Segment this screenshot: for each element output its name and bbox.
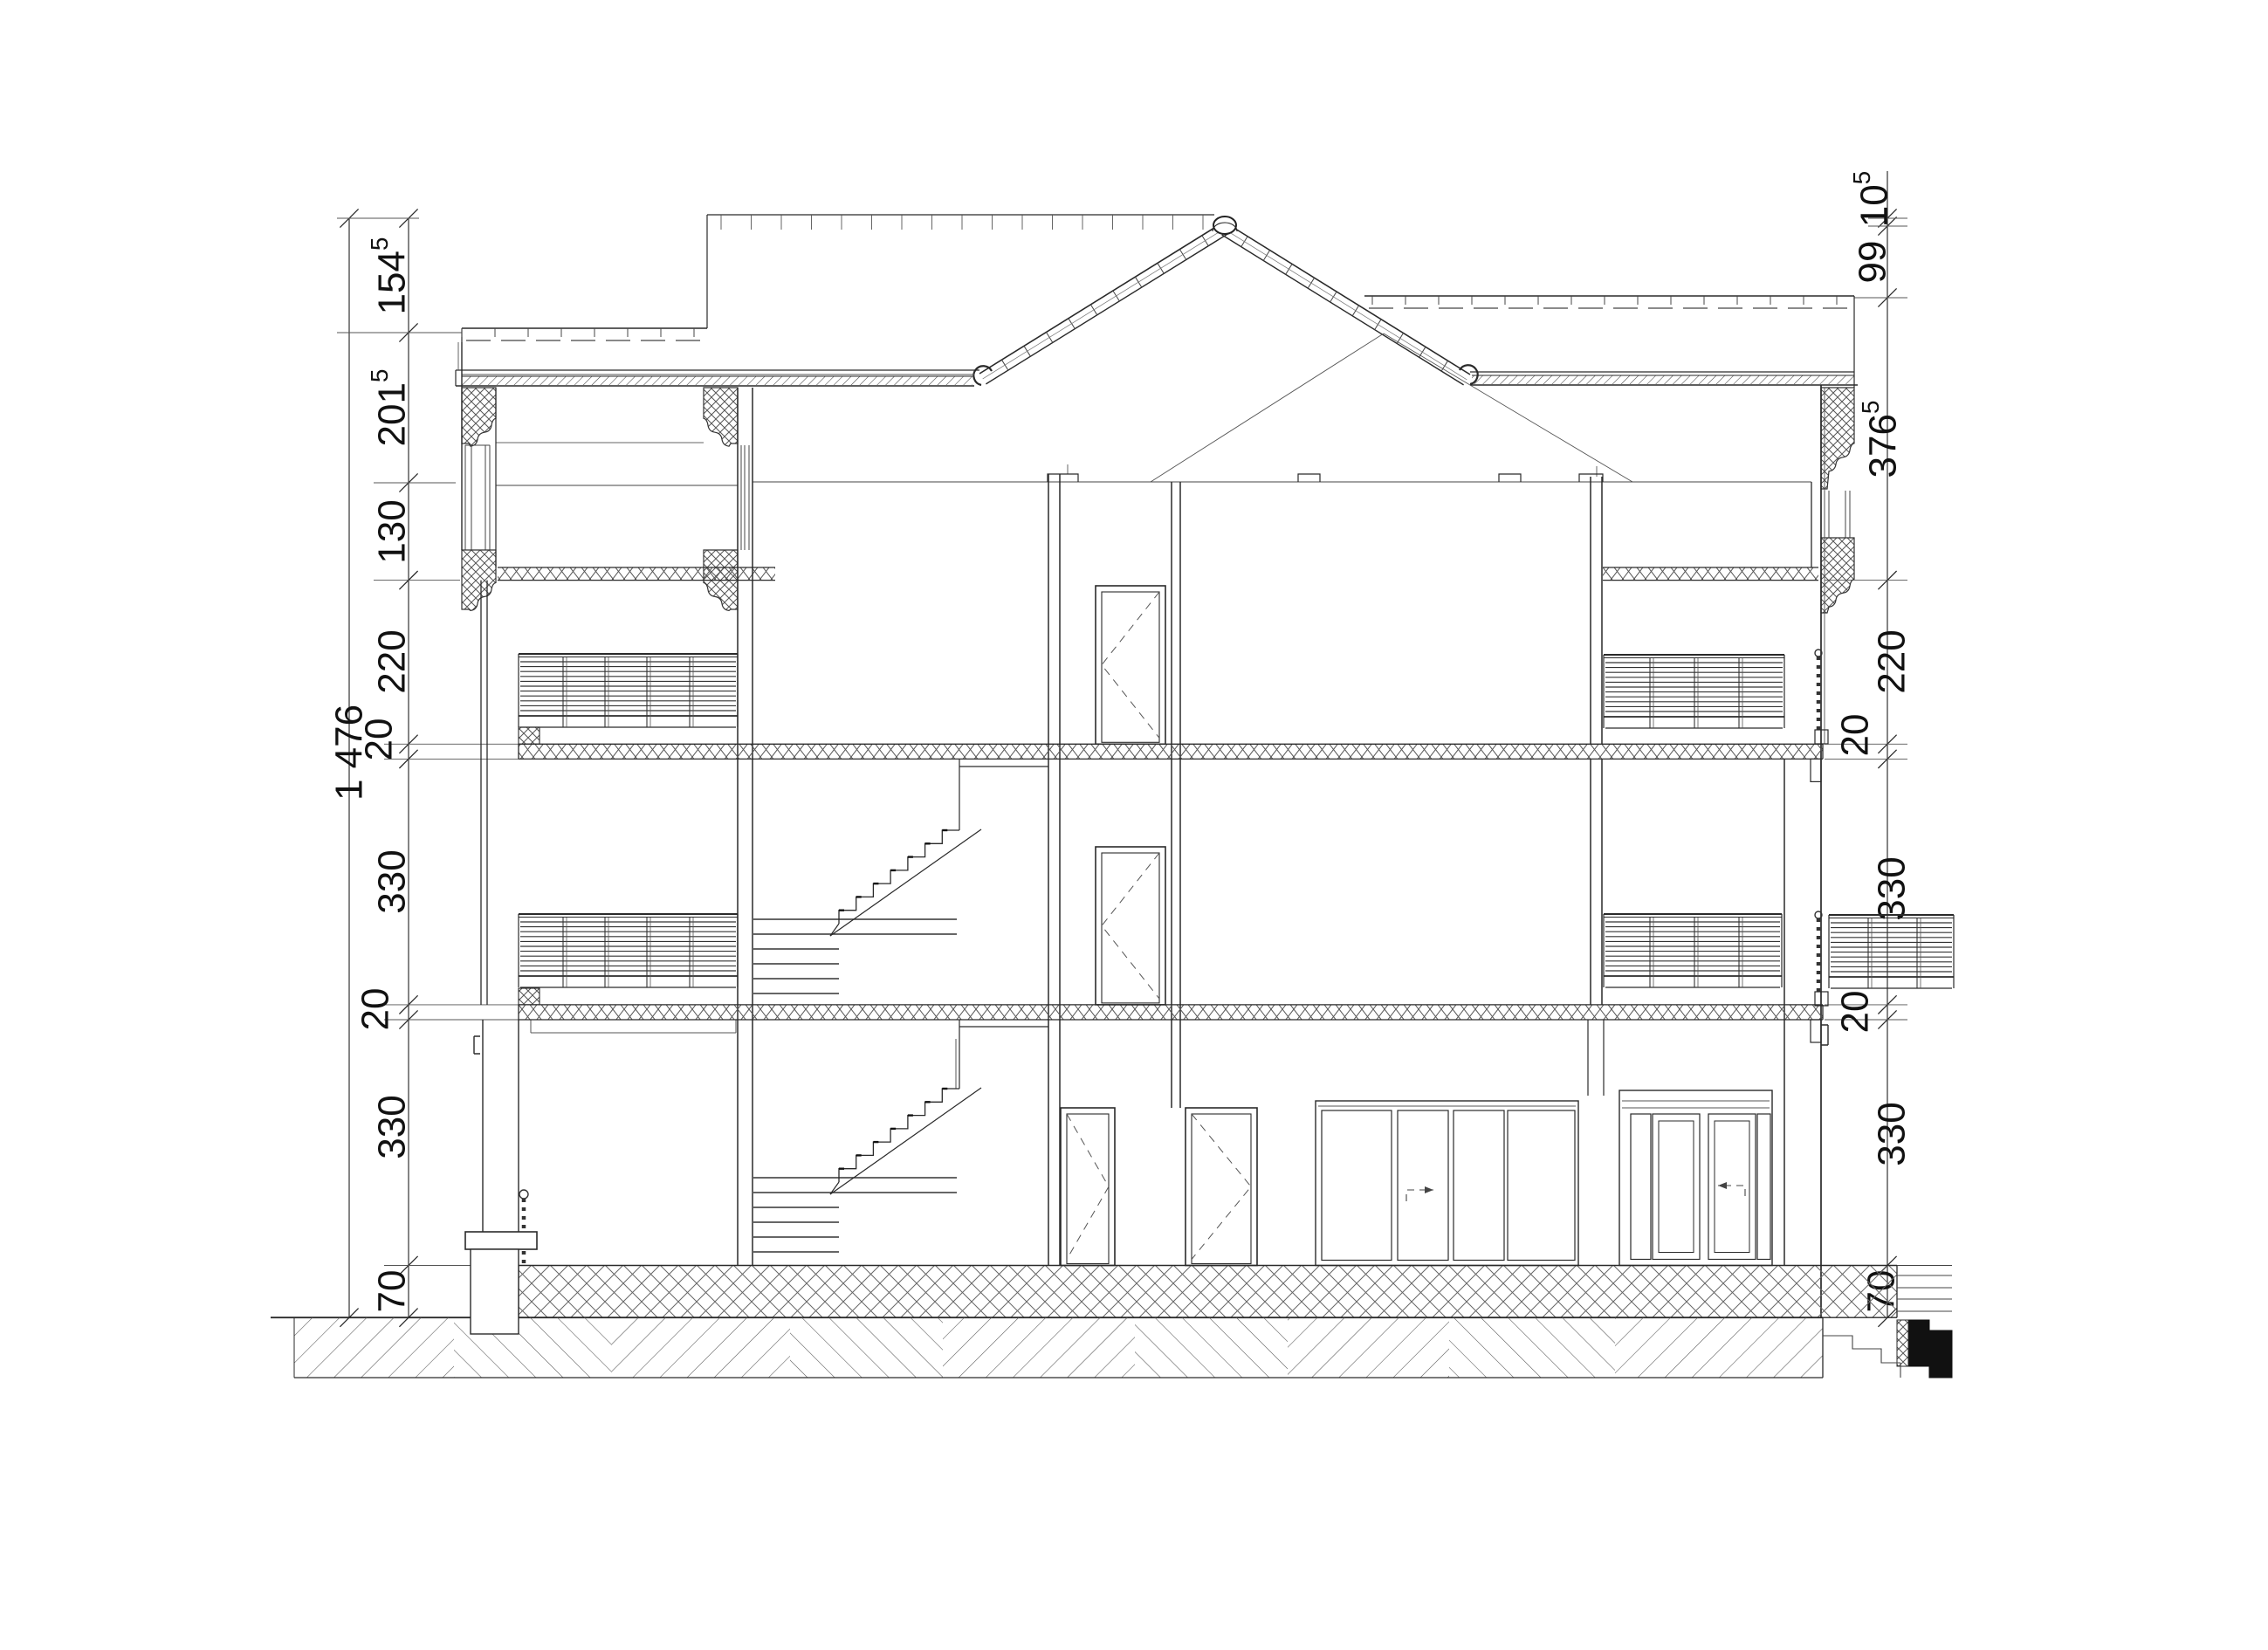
svg-text:130: 130 bbox=[371, 499, 414, 563]
svg-text:330: 330 bbox=[371, 1095, 414, 1158]
svg-text:20: 20 bbox=[1834, 991, 1877, 1034]
svg-text:70: 70 bbox=[371, 1270, 414, 1313]
svg-text:99: 99 bbox=[1852, 241, 1894, 284]
svg-text:330: 330 bbox=[1871, 1102, 1914, 1165]
svg-text:20: 20 bbox=[1834, 714, 1877, 757]
svg-text:20: 20 bbox=[354, 988, 397, 1031]
svg-text:330: 330 bbox=[1871, 856, 1914, 920]
svg-text:220: 220 bbox=[1871, 629, 1914, 693]
svg-text:220: 220 bbox=[371, 629, 414, 693]
svg-text:1 476: 1 476 bbox=[328, 705, 371, 801]
svg-text:330: 330 bbox=[371, 849, 414, 913]
